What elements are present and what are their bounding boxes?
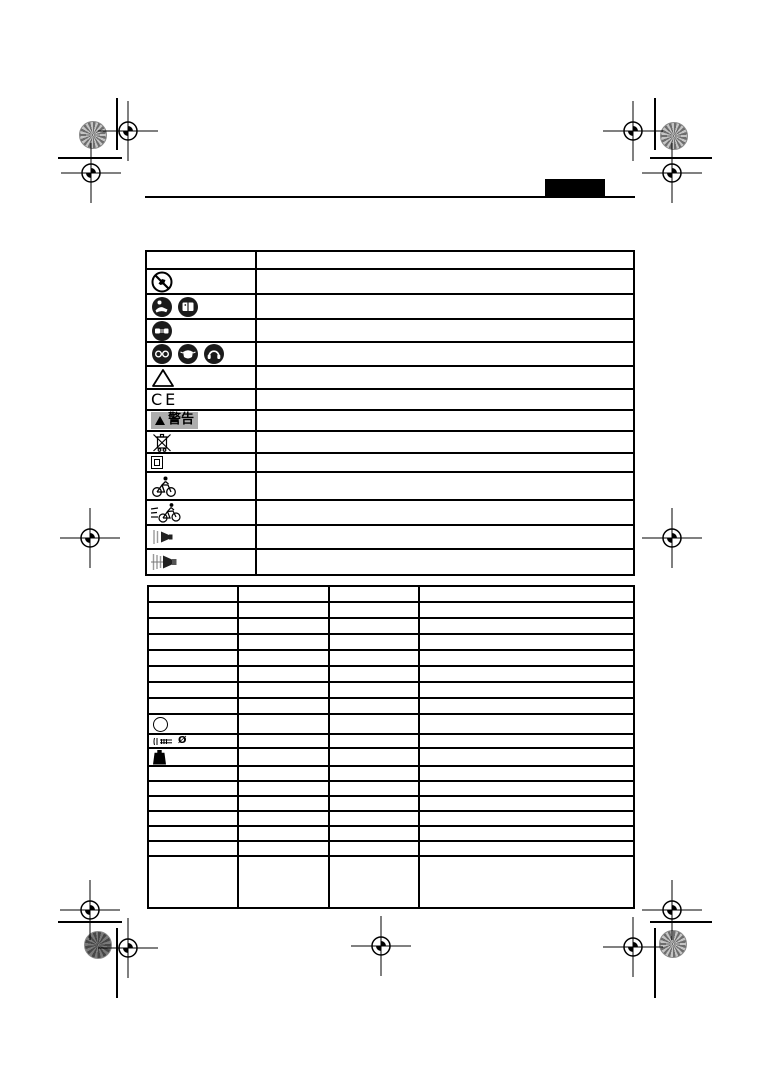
table-cell xyxy=(239,603,330,617)
table-cell xyxy=(330,782,420,795)
table-cell xyxy=(239,842,330,855)
warning-triangle-icon xyxy=(151,368,175,388)
description-cell xyxy=(257,473,633,499)
dust-mask-icon xyxy=(177,343,199,365)
table-cell xyxy=(420,797,633,810)
table-cell xyxy=(149,767,239,780)
symbols-legend-table: CE 警告 xyxy=(145,250,635,576)
table-cell xyxy=(149,842,239,855)
table-row xyxy=(149,619,633,635)
table-row xyxy=(147,270,633,295)
description-cell xyxy=(257,343,633,365)
table-cell xyxy=(420,683,633,697)
table-cell xyxy=(239,812,330,825)
table-cell xyxy=(239,827,330,840)
table-cell xyxy=(330,667,420,681)
table-row xyxy=(147,526,633,550)
registration-crosshair-icon xyxy=(61,143,121,203)
table-cell xyxy=(149,683,239,697)
table-cell xyxy=(149,651,239,665)
description-cell xyxy=(257,501,633,524)
table-cell xyxy=(420,603,633,617)
description-cell xyxy=(257,252,633,268)
table-row xyxy=(149,715,633,735)
table-cell xyxy=(420,749,633,765)
table-row xyxy=(149,749,633,767)
ce-mark: CE xyxy=(151,392,178,408)
table-cell xyxy=(420,667,633,681)
table-cell xyxy=(239,782,330,795)
table-row xyxy=(147,550,633,574)
symbol-cell xyxy=(147,550,257,574)
symbol-cell: CE xyxy=(147,390,257,409)
table-row xyxy=(149,767,633,782)
eye-protection-icon xyxy=(151,343,173,365)
registration-crosshair-icon xyxy=(60,508,120,568)
table-cell xyxy=(149,667,239,681)
table-cell xyxy=(239,683,330,697)
description-cell xyxy=(257,270,633,293)
table-cell xyxy=(420,812,633,825)
table-row xyxy=(147,367,633,390)
table-cell xyxy=(330,842,420,855)
table-cell xyxy=(420,699,633,713)
table-cell xyxy=(330,735,420,747)
registration-crosshair-icon xyxy=(603,917,663,977)
fast-cyclist-icon xyxy=(151,502,181,524)
weight-icon xyxy=(153,750,166,765)
table-cell xyxy=(239,619,330,633)
table-cell xyxy=(149,619,239,633)
table-cell xyxy=(239,735,330,747)
read-manual-icon xyxy=(151,296,173,318)
description-cell xyxy=(257,320,633,341)
symbol-cell xyxy=(147,473,257,499)
table-cell xyxy=(420,767,633,780)
table-row: CE xyxy=(147,390,633,411)
table-cell xyxy=(420,651,633,665)
symbol-cell xyxy=(147,454,257,471)
table-cell xyxy=(239,857,330,907)
table-cell xyxy=(149,603,239,617)
symbol-cell: 警告 xyxy=(147,411,257,430)
description-cell xyxy=(257,367,633,388)
table-row xyxy=(149,667,633,683)
table-cell xyxy=(330,857,420,907)
table-cell xyxy=(239,797,330,810)
diameter-symbol: Ø xyxy=(178,736,187,746)
table-cell: Ø xyxy=(149,735,239,747)
table-cell xyxy=(149,715,239,733)
description-cell xyxy=(257,390,633,409)
table-cell xyxy=(239,749,330,765)
table-cell xyxy=(239,767,330,780)
table-row xyxy=(149,827,633,842)
table-row xyxy=(147,252,633,270)
table-cell xyxy=(239,587,330,601)
double-insulation-icon xyxy=(151,456,163,469)
symbol-cell xyxy=(147,252,257,268)
table-cell xyxy=(149,699,239,713)
table-row xyxy=(149,683,633,699)
table-row xyxy=(149,797,633,812)
weee-crossed-bin-icon xyxy=(151,431,173,453)
table-row xyxy=(147,295,633,320)
registration-crosshair-icon xyxy=(642,508,702,568)
registration-crosshair-icon xyxy=(351,916,411,976)
table-cell xyxy=(420,782,633,795)
table-row xyxy=(149,587,633,603)
symbol-cell xyxy=(147,526,257,548)
table-row: 警告 xyxy=(147,411,633,432)
language-tab xyxy=(545,179,605,197)
warning-badge-label: 警告 xyxy=(168,413,194,427)
table-cell xyxy=(420,715,633,733)
description-cell xyxy=(257,526,633,548)
table-cell xyxy=(239,651,330,665)
unplug-icon xyxy=(151,320,173,342)
table-cell xyxy=(330,827,420,840)
speaker-low-icon xyxy=(151,528,175,546)
table-cell xyxy=(330,699,420,713)
table-cell xyxy=(420,827,633,840)
screw-icon xyxy=(153,737,175,746)
table-cell xyxy=(330,797,420,810)
table-cell xyxy=(149,782,239,795)
table-row xyxy=(149,699,633,715)
instruction-book-icon xyxy=(177,296,199,318)
description-cell xyxy=(257,454,633,471)
table-cell xyxy=(239,635,330,649)
no-reach-prohibition-icon xyxy=(151,271,173,293)
table-cell xyxy=(420,857,633,907)
table-row xyxy=(147,473,633,501)
symbol-cell xyxy=(147,501,257,524)
circle-symbol-icon xyxy=(153,717,168,732)
registration-crosshair-icon xyxy=(642,143,702,203)
table-cell xyxy=(149,749,239,765)
table-row xyxy=(147,454,633,473)
table-cell xyxy=(330,619,420,633)
table-row xyxy=(149,635,633,651)
table-cell xyxy=(420,635,633,649)
table-row xyxy=(147,501,633,526)
document-page: CE 警告 Ø xyxy=(0,0,765,1082)
table-row xyxy=(149,812,633,827)
table-cell xyxy=(330,651,420,665)
table-cell xyxy=(149,587,239,601)
table-row xyxy=(147,320,633,343)
description-cell xyxy=(257,411,633,430)
table-cell xyxy=(239,715,330,733)
table-cell xyxy=(149,812,239,825)
table-cell xyxy=(330,587,420,601)
table-row xyxy=(149,857,633,907)
table-cell xyxy=(330,767,420,780)
table-row xyxy=(149,651,633,667)
table-cell xyxy=(149,797,239,810)
warning-triangle-filled-icon xyxy=(155,416,165,425)
description-cell xyxy=(257,550,633,574)
table-cell xyxy=(239,699,330,713)
speaker-loud-icon xyxy=(151,553,179,571)
table-row xyxy=(149,842,633,857)
table-cell xyxy=(420,842,633,855)
symbol-cell xyxy=(147,343,257,365)
warning-badge: 警告 xyxy=(151,412,198,428)
table-cell xyxy=(330,749,420,765)
symbol-cell xyxy=(147,320,257,341)
table-cell xyxy=(149,635,239,649)
symbol-cell xyxy=(147,295,257,318)
table-cell xyxy=(330,715,420,733)
description-cell xyxy=(257,432,633,452)
description-cell xyxy=(257,295,633,318)
table-row: Ø xyxy=(149,735,633,749)
table-cell xyxy=(330,683,420,697)
table-cell xyxy=(420,619,633,633)
symbol-cell xyxy=(147,270,257,293)
table-cell xyxy=(420,587,633,601)
table-cell xyxy=(420,735,633,747)
table-row xyxy=(149,782,633,797)
table-row xyxy=(147,432,633,454)
table-cell xyxy=(330,603,420,617)
table-row xyxy=(149,603,633,619)
table-cell xyxy=(149,827,239,840)
symbol-cell xyxy=(147,367,257,388)
table-cell xyxy=(330,812,420,825)
cyclist-icon xyxy=(151,475,177,498)
ear-protection-icon xyxy=(203,343,225,365)
table-row xyxy=(147,343,633,367)
table-cell xyxy=(239,667,330,681)
table-cell xyxy=(330,635,420,649)
table-cell xyxy=(149,857,239,907)
registration-crosshair-icon xyxy=(98,918,158,978)
specifications-table: Ø xyxy=(147,585,635,909)
symbol-cell xyxy=(147,432,257,452)
